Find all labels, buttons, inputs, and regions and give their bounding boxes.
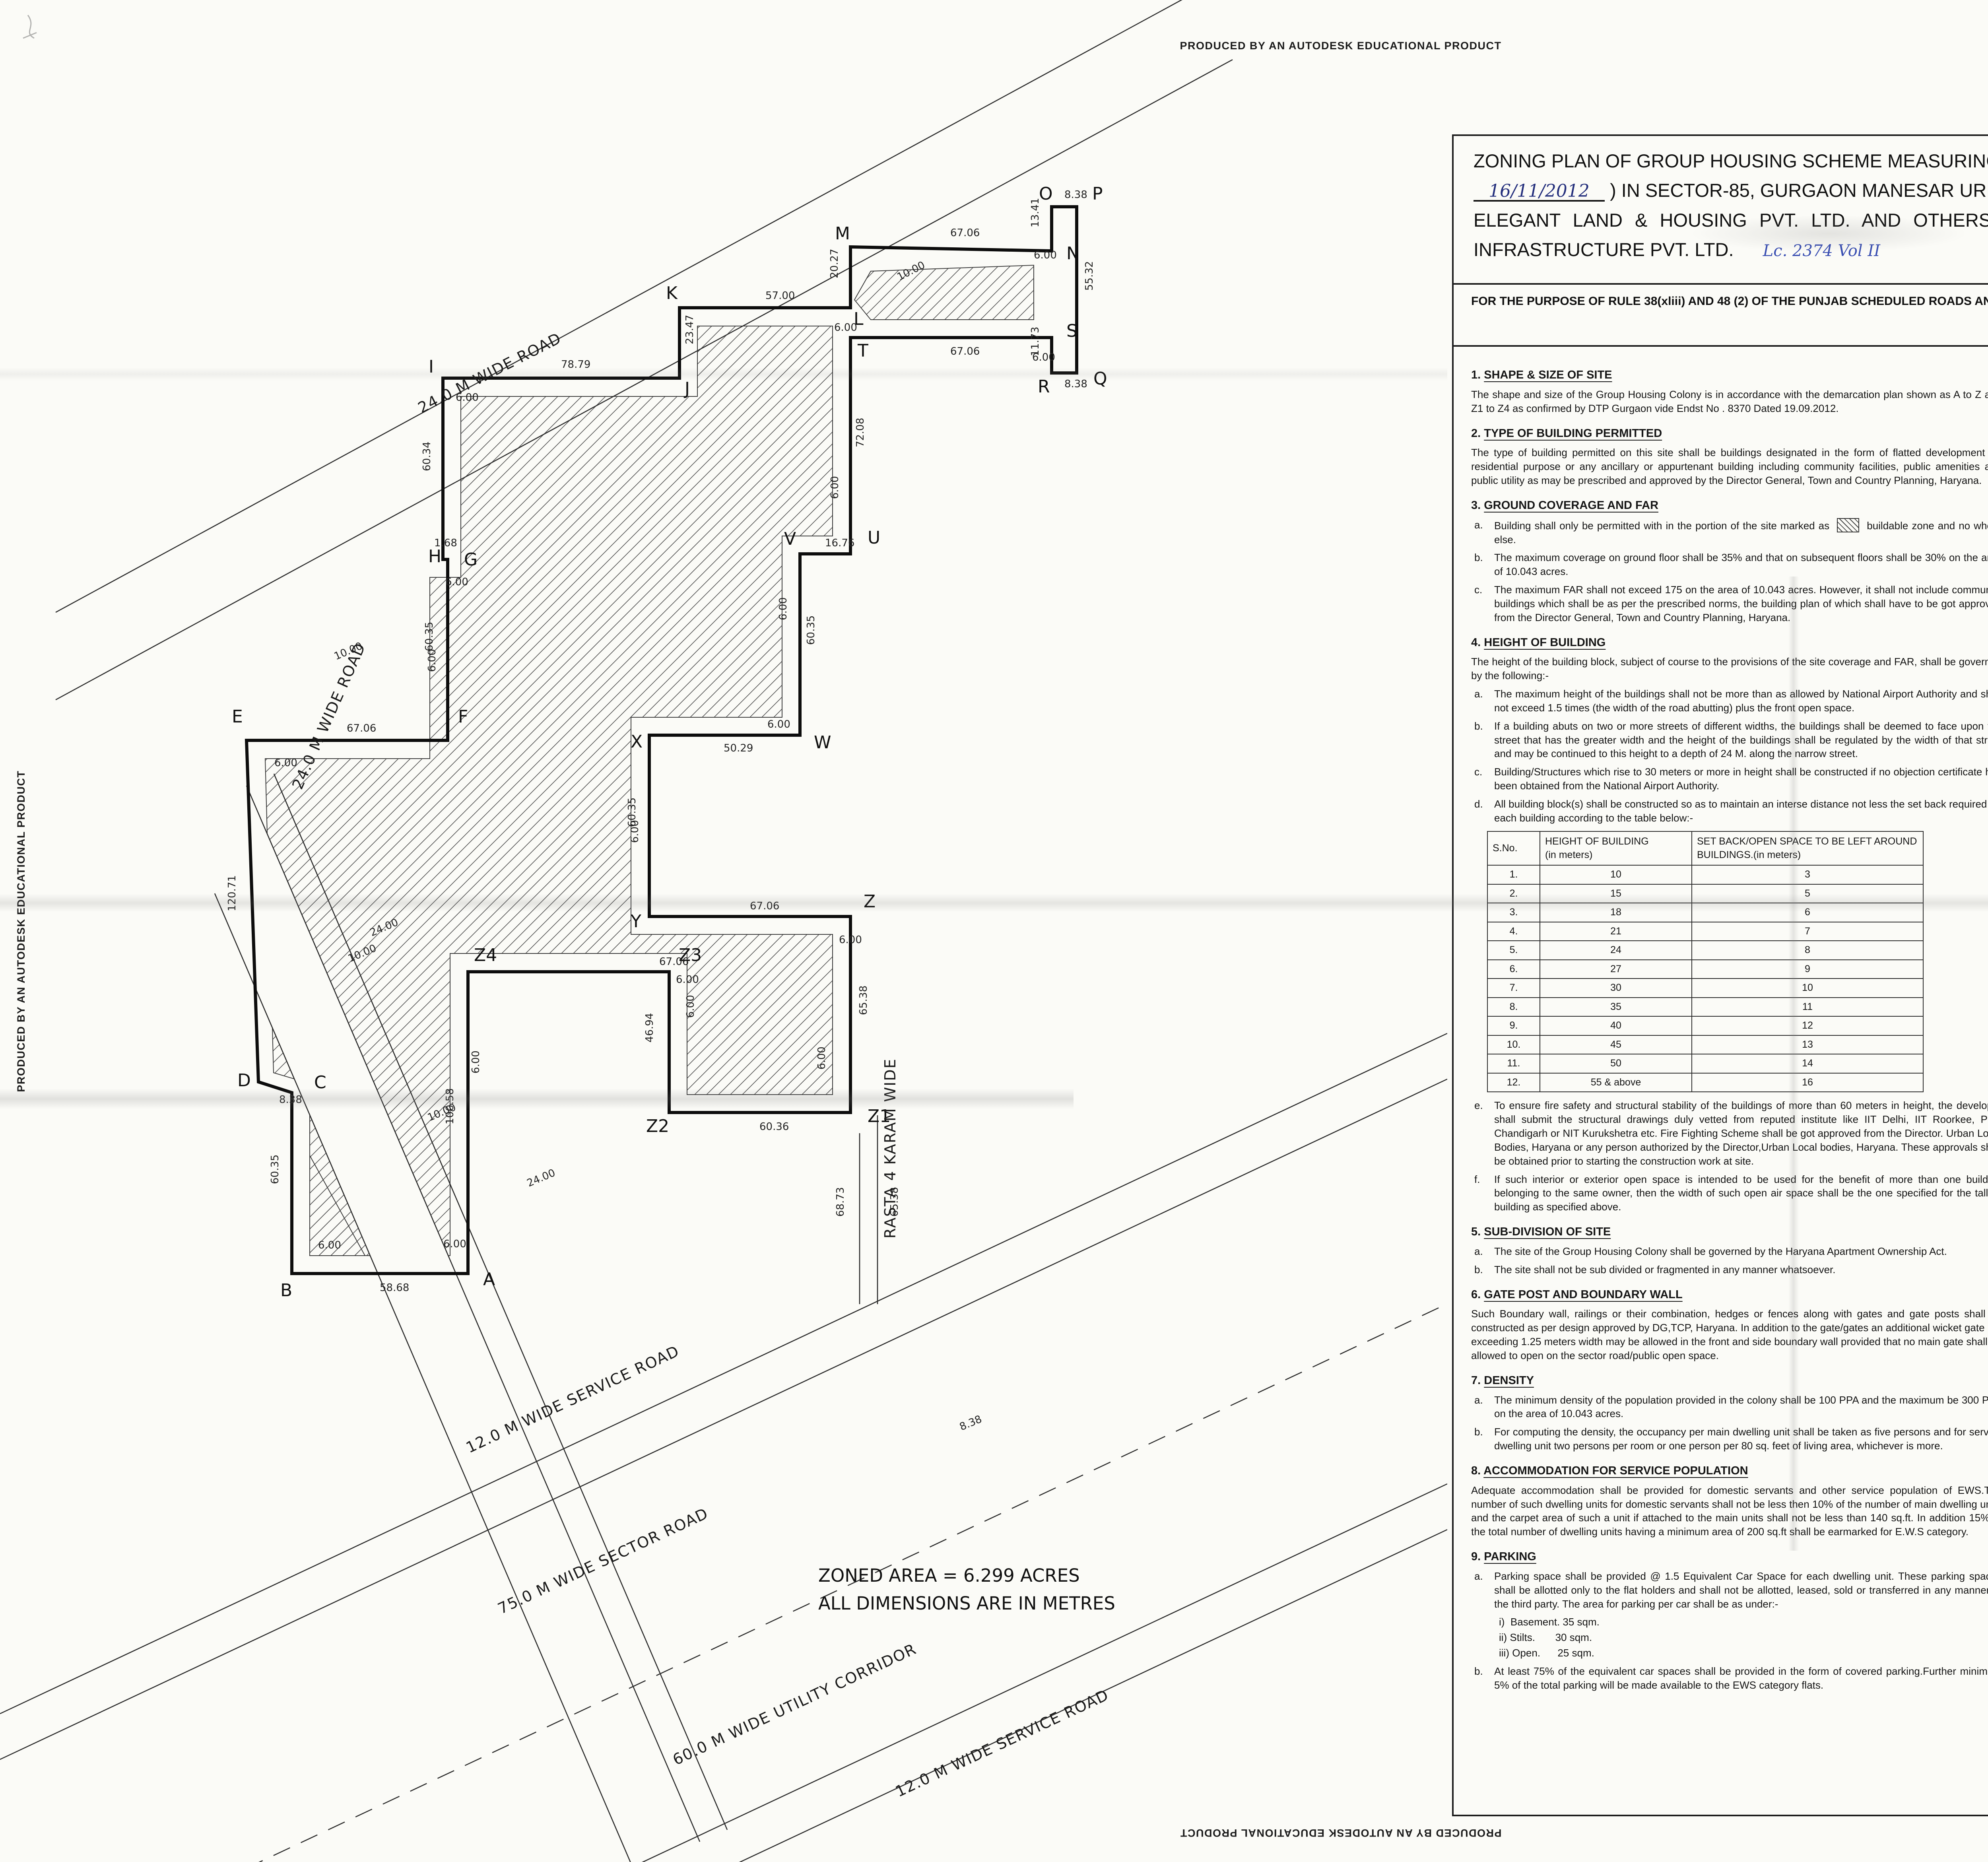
clause-text: The maximum height of the buildings shal… xyxy=(1494,688,1988,714)
section-heading: 5. SUB-DIVISION OF SITE xyxy=(1471,1224,1988,1240)
table-cell: 9 xyxy=(1692,960,1923,979)
road-centerline-dashed xyxy=(0,1304,1447,1862)
table-row: 8.3511 xyxy=(1487,998,1923,1017)
hatch-swatch xyxy=(1837,518,1859,532)
clause-label: c. xyxy=(1474,583,1482,597)
clause-label: a. xyxy=(1474,687,1483,701)
clause-text: If such interior or exterior open space … xyxy=(1494,1173,1988,1213)
section: 6. GATE POST AND BOUNDARY WALLSuch Bound… xyxy=(1471,1287,1988,1363)
table-cell: 27 xyxy=(1540,960,1692,979)
drawing-title: ZONING PLAN OF GROUP HOUSING SCHEME MEAS… xyxy=(1474,146,1988,264)
table-cell: 18 xyxy=(1540,903,1692,922)
clause-text: The site of the Group Housing Colony sha… xyxy=(1494,1245,1947,1257)
clause-label: b. xyxy=(1474,1263,1483,1277)
clause-text: To ensure fire safety and structural sta… xyxy=(1494,1099,1988,1167)
clause-label: b. xyxy=(1474,1425,1483,1439)
vertex-letter: S xyxy=(1066,321,1077,341)
table-cell: 1. xyxy=(1487,865,1540,884)
vertex-letter: I xyxy=(429,357,434,377)
vertex-letter: C xyxy=(314,1072,326,1093)
clause-item: b.For computing the density, the occupan… xyxy=(1471,1425,1988,1453)
clause-text: The maximum coverage on ground floor sha… xyxy=(1494,551,1988,577)
table-cell: 6 xyxy=(1692,903,1923,922)
dimension-label: 6.00 xyxy=(777,597,789,620)
table-cell: 55 & above xyxy=(1540,1073,1692,1092)
vertex-letter: M xyxy=(835,223,850,244)
vertex-letter: D xyxy=(237,1070,251,1091)
scan-pen-mark xyxy=(23,15,37,38)
table-cell: 12 xyxy=(1692,1016,1923,1035)
dimension-label: 6.00 xyxy=(629,820,641,843)
dimension-label: 13.41 xyxy=(1029,198,1041,227)
dimension-label: 60.36 xyxy=(759,1121,789,1133)
dimension-label: 78.79 xyxy=(561,359,590,371)
road-line xyxy=(0,1530,1447,1862)
setback-table: S.No.HEIGHT OF BUILDING (in meters)SET B… xyxy=(1487,831,1924,1092)
table-cell: 11. xyxy=(1487,1054,1540,1073)
dimension-label: 60.35 xyxy=(269,1155,281,1184)
road-line xyxy=(0,1079,1447,1759)
section: 4. HEIGHT OF BUILDINGThe height of the b… xyxy=(1471,635,1988,1214)
section-title: SUB-DIVISION OF SITE xyxy=(1484,1225,1611,1238)
dimension-label: 60.35 xyxy=(805,615,817,645)
zoned-area-note: ALL DIMENSIONS ARE IN METRES xyxy=(818,1593,1115,1614)
table-cell: 7 xyxy=(1692,922,1923,941)
table-cell: 10. xyxy=(1487,1035,1540,1054)
section: 3. GROUND COVERAGE AND FARa.Building sha… xyxy=(1471,498,1988,625)
table-cell: 50 xyxy=(1540,1054,1692,1073)
buildable-zone-hatch xyxy=(854,265,1034,320)
section: 5. SUB-DIVISION OF SITEa.The site of the… xyxy=(1471,1224,1988,1277)
clause-item: a.The site of the Group Housing Colony s… xyxy=(1471,1245,1988,1258)
dimension-label: 16.76 xyxy=(825,537,854,549)
clause-text: All building block(s) shall be construct… xyxy=(1494,798,1988,824)
clause-item: b.The site shall not be sub divided or f… xyxy=(1471,1263,1988,1277)
road-line xyxy=(0,1484,1447,1862)
clause-text: The site shall not be sub divided or fra… xyxy=(1494,1264,1836,1276)
dimension-label: 50.29 xyxy=(724,742,753,754)
clause-label: f. xyxy=(1474,1173,1480,1186)
road-label: RASTA 4 KARAM WIDE xyxy=(881,1058,899,1239)
table-row: 3.186 xyxy=(1487,903,1923,922)
table-row: 7.3010 xyxy=(1487,979,1923,998)
section: 1. SHAPE & SIZE OF SITEThe shape and siz… xyxy=(1471,367,1988,416)
table-cell: 11 xyxy=(1692,998,1923,1017)
clause-label: b. xyxy=(1474,551,1483,565)
dated-blank: 16/11/2012 xyxy=(1474,181,1605,202)
zoning-plan-sheet: PRODUCED BY AN AUTODESK EDUCATIONAL PROD… xyxy=(0,0,1988,1862)
vertex-letter: Q xyxy=(1093,369,1107,389)
site-plan-svg: ABCDEFGHIJKLMNOPQRSTUVWXYZZ1Z2Z3Z478.792… xyxy=(0,0,1447,1862)
table-header: S.No. xyxy=(1487,831,1540,865)
table-cell: 16 xyxy=(1692,1073,1923,1092)
section-heading: 3. GROUND COVERAGE AND FAR xyxy=(1471,498,1988,513)
title-text-1: ZONING PLAN OF GROUP HOUSING SCHEME MEAS… xyxy=(1474,150,1988,171)
vertex-letter: Z xyxy=(864,891,876,912)
zoned-area-note: ZONED AREA = 6.299 ACRES xyxy=(818,1565,1080,1586)
table-cell: 10 xyxy=(1692,979,1923,998)
dimension-label: 60.35 xyxy=(423,622,435,651)
title-divider xyxy=(1452,283,1988,285)
clause-item: c.Building/Structures which rise to 30 m… xyxy=(1471,765,1988,793)
clause-label: a. xyxy=(1474,518,1483,532)
clause-label: b. xyxy=(1474,719,1483,733)
table-cell: 45 xyxy=(1540,1035,1692,1054)
vertex-letter: G xyxy=(464,549,478,570)
parking-area-line: iii) Open. 25 sqm. xyxy=(1471,1646,1988,1660)
subtitle-divider xyxy=(1452,345,1988,347)
clause-text: Parking space shall be provided @ 1.5 Eq… xyxy=(1494,1570,1988,1610)
dimension-label: 60.34 xyxy=(421,442,433,471)
table-cell: 5. xyxy=(1487,941,1540,960)
title-text-6: INFRASTRUCTURE PVT. LTD. xyxy=(1474,239,1734,260)
table-row: 5.248 xyxy=(1487,941,1923,960)
dimension-label: 1.68 xyxy=(434,537,457,549)
section-heading: 4. HEIGHT OF BUILDING xyxy=(1471,635,1988,650)
section-number: 9. xyxy=(1471,1550,1484,1563)
dimension-label: 55.32 xyxy=(1083,261,1095,291)
table-row: 9.4012 xyxy=(1487,1016,1923,1035)
table-cell: 30 xyxy=(1540,979,1692,998)
section-number: 6. xyxy=(1471,1288,1484,1301)
section-heading: 9. PARKING xyxy=(1471,1549,1988,1565)
table-cell: 3 xyxy=(1692,865,1923,884)
section: 7. DENSITYa.The minimum density of the p… xyxy=(1471,1373,1988,1453)
dimension-label: 67.06 xyxy=(950,227,980,239)
dimension-label: 6.00 xyxy=(470,1050,482,1074)
dimension-label: 65.38 xyxy=(858,986,870,1015)
table-row: 12.55 & above16 xyxy=(1487,1073,1923,1092)
dated-handwritten: 16/11/2012 xyxy=(1489,181,1590,201)
table-cell: 10 xyxy=(1540,865,1692,884)
table-cell: 35 xyxy=(1540,998,1692,1017)
clause-label: e. xyxy=(1474,1099,1483,1113)
vertex-letter: A xyxy=(483,1269,495,1289)
vertex-letter: K xyxy=(666,283,678,303)
file-note-handwritten: Lc. 2374 Vol II xyxy=(1763,242,1880,260)
table-row: 10.4513 xyxy=(1487,1035,1923,1054)
vertex-letter: Z4 xyxy=(474,945,497,965)
purpose-subtitle: FOR THE PURPOSE OF RULE 38(xliii) AND 48… xyxy=(1471,293,1988,310)
dimension-label: 6.00 xyxy=(839,934,862,946)
clause-text: The maximum FAR shall not exceed 175 on … xyxy=(1494,584,1988,623)
section-heading: 7. DENSITY xyxy=(1471,1373,1988,1388)
section-number: 3. xyxy=(1471,499,1484,512)
parking-area-line: i) Basement. 35 sqm. xyxy=(1471,1615,1988,1629)
vertex-letter: U xyxy=(868,528,880,548)
table-cell: 13 xyxy=(1692,1035,1923,1054)
notes-column-1: 1. SHAPE & SIZE OF SITEThe shape and siz… xyxy=(1471,357,1988,1697)
section-title: GROUND COVERAGE AND FAR xyxy=(1484,499,1658,512)
dimension-label: 6.00 xyxy=(1032,351,1055,363)
clause-item: a.The minimum density of the population … xyxy=(1471,1393,1988,1421)
dimension-label: 8.38 xyxy=(1064,189,1087,201)
section-number: 2. xyxy=(1471,427,1484,440)
dimension-label: 6.00 xyxy=(443,1238,466,1250)
clause-item: a.Building shall only be permitted with … xyxy=(1471,518,1988,547)
clause-paragraph: The height of the building block, subjec… xyxy=(1471,655,1988,683)
road-label: 12.0 M WIDE SERVICE ROAD xyxy=(893,1686,1111,1800)
dimension-label: 68.73 xyxy=(835,1187,846,1217)
table-row: 2.155 xyxy=(1487,884,1923,903)
dimension-label: 8.38 xyxy=(1064,378,1087,390)
section-title: SHAPE & SIZE OF SITE xyxy=(1484,369,1612,381)
dimension-label: 6.00 xyxy=(274,757,297,769)
dimension-label: 23.47 xyxy=(684,315,696,344)
section-title: ACCOMMODATION FOR SERVICE POPULATION xyxy=(1483,1464,1748,1477)
section-heading: 1. SHAPE & SIZE OF SITE xyxy=(1471,367,1988,383)
table-cell: 5 xyxy=(1692,884,1923,903)
dimension-label: 6.00 xyxy=(816,1047,828,1070)
table-cell: 12. xyxy=(1487,1073,1540,1092)
dimension-label: 6.00 xyxy=(829,476,841,499)
table-row: 4.217 xyxy=(1487,922,1923,941)
section-heading: 6. GATE POST AND BOUNDARY WALL xyxy=(1471,1287,1988,1303)
clause-label: d. xyxy=(1474,797,1483,811)
dimension-label: 6.00 xyxy=(426,649,438,672)
dimension-label: 24.00 xyxy=(525,1167,557,1190)
parking-area-line: ii) Stilts. 30 sqm. xyxy=(1471,1631,1988,1645)
clause-paragraph: Adequate accommodation shall be provided… xyxy=(1471,1483,1988,1539)
vertex-letter: H xyxy=(428,546,441,567)
section-number: 1. xyxy=(1471,369,1484,381)
vertex-letter: V xyxy=(784,529,796,549)
dimension-label: 67.06 xyxy=(950,346,980,357)
table-cell: 2. xyxy=(1487,884,1540,903)
dimension-label: 67.06 xyxy=(750,900,779,912)
table-row: 6.279 xyxy=(1487,960,1923,979)
table-cell: 8 xyxy=(1692,941,1923,960)
table-cell: 4. xyxy=(1487,922,1540,941)
clause-text: If a building abuts on two or more stree… xyxy=(1494,720,1988,760)
clause-item: c.The maximum FAR shall not exceed 175 o… xyxy=(1471,583,1988,624)
clause-item: f.If such interior or exterior open spac… xyxy=(1471,1173,1988,1214)
section-title: PARKING xyxy=(1484,1550,1536,1563)
clause-item: e.To ensure fire safety and structural s… xyxy=(1471,1099,1988,1168)
table-cell: 8. xyxy=(1487,998,1540,1017)
clause-paragraph: The shape and size of the Group Housing … xyxy=(1471,388,1988,416)
table-cell: 21 xyxy=(1540,922,1692,941)
vertex-letter: Z2 xyxy=(646,1116,669,1136)
section-title: DENSITY xyxy=(1484,1374,1534,1387)
clause-text: For computing the density, the occupancy… xyxy=(1494,1426,1988,1452)
section-title: GATE POST AND BOUNDARY WALL xyxy=(1484,1288,1682,1301)
clause-label: b. xyxy=(1474,1664,1483,1678)
clause-item: b.The maximum coverage on ground floor s… xyxy=(1471,551,1988,579)
clause-label: c. xyxy=(1474,765,1482,779)
table-cell: 40 xyxy=(1540,1016,1692,1035)
section: 9. PARKINGa.Parking space shall be provi… xyxy=(1471,1549,1988,1692)
vertex-letter: X xyxy=(631,732,643,752)
dimension-label: 57.00 xyxy=(765,290,795,302)
clause-text: At least 75% of the equivalent car space… xyxy=(1494,1665,1988,1691)
clause-item: b.At least 75% of the equivalent car spa… xyxy=(1471,1664,1988,1692)
dimension-label: 6.00 xyxy=(676,974,699,986)
section-title: HEIGHT OF BUILDING xyxy=(1484,636,1606,649)
dimension-label: 20.27 xyxy=(829,249,841,278)
dimension-label: 6.00 xyxy=(445,576,468,588)
clause-item: a.Parking space shall be provided @ 1.5 … xyxy=(1471,1569,1988,1611)
section-title: TYPE OF BUILDING PERMITTED xyxy=(1484,427,1662,440)
section-heading: 8. ACCOMMODATION FOR SERVICE POPULATION xyxy=(1471,1463,1988,1479)
vertex-letter: P xyxy=(1092,184,1103,204)
table-header-row: S.No.HEIGHT OF BUILDING (in meters)SET B… xyxy=(1487,831,1923,865)
vertex-letter: F xyxy=(458,707,468,727)
dimension-label: 72.08 xyxy=(854,418,866,447)
clause-paragraph: Such Boundary wall, railings or their co… xyxy=(1471,1307,1988,1362)
table-cell: 3. xyxy=(1487,903,1540,922)
table-cell: 15 xyxy=(1540,884,1692,903)
table-cell: 7. xyxy=(1487,979,1540,998)
dimension-label: 67.06 xyxy=(659,956,689,968)
dimension-label: 6.00 xyxy=(834,322,857,334)
vertex-letter: Y xyxy=(630,911,641,932)
road-line xyxy=(0,1033,1447,1714)
table-cell: 6. xyxy=(1487,960,1540,979)
section-number: 7. xyxy=(1471,1374,1484,1387)
clause-text: The minimum density of the population pr… xyxy=(1494,1394,1988,1420)
dimension-label: 8.38 xyxy=(958,1413,984,1433)
title-text-5: ELEGANT LAND & HOUSING PVT. LTD. AND OTH… xyxy=(1474,210,1988,231)
table-cell: 24 xyxy=(1540,941,1692,960)
clause-item: b.If a building abuts on two or more str… xyxy=(1471,719,1988,761)
dimension-label: 67.06 xyxy=(347,722,376,734)
clause-label: a. xyxy=(1474,1245,1483,1258)
clause-text: Building shall only be permitted with in… xyxy=(1494,520,1988,546)
dimension-label: 8.38 xyxy=(279,1094,302,1106)
clause-label: a. xyxy=(1474,1569,1483,1583)
vertex-letter: E xyxy=(232,707,243,727)
clause-label: a. xyxy=(1474,1393,1483,1407)
clause-text: Building/Structures which rise to 30 met… xyxy=(1494,766,1988,792)
table-header: HEIGHT OF BUILDING (in meters) xyxy=(1540,831,1692,865)
table-cell: 9. xyxy=(1487,1016,1540,1035)
section-number: 8. xyxy=(1471,1464,1483,1477)
section-heading: 2. TYPE OF BUILDING PERMITTED xyxy=(1471,426,1988,441)
section: 8. ACCOMMODATION FOR SERVICE POPULATIONA… xyxy=(1471,1463,1988,1539)
dimension-label: 6.00 xyxy=(318,1239,341,1251)
section: 2. TYPE OF BUILDING PERMITTEDThe type of… xyxy=(1471,426,1988,487)
section-number: 5. xyxy=(1471,1225,1484,1238)
table-row: 11.5014 xyxy=(1487,1054,1923,1073)
clause-item: a.The maximum height of the buildings sh… xyxy=(1471,687,1988,715)
vertex-letter: R xyxy=(1038,377,1050,397)
table-row: 1.103 xyxy=(1487,865,1923,884)
table-header: SET BACK/OPEN SPACE TO BE LEFT AROUND BU… xyxy=(1692,831,1923,865)
clause-paragraph: The type of building permitted on this s… xyxy=(1471,446,1988,487)
vertex-letter: W xyxy=(814,732,831,753)
dimension-label: 58.68 xyxy=(380,1282,409,1294)
vertex-letter: J xyxy=(683,379,690,399)
clause-item: d.All building block(s) shall be constru… xyxy=(1471,797,1988,825)
dimension-label: 6.00 xyxy=(685,995,697,1018)
vertex-letter: N xyxy=(1066,243,1079,264)
vertex-letter: B xyxy=(280,1280,292,1301)
table-cell: 14 xyxy=(1692,1054,1923,1073)
dimension-label: 6.00 xyxy=(1034,249,1057,261)
title-text-4: ) IN SECTOR-85, GURGAON MANESAR URBAN CO… xyxy=(1610,180,1988,201)
dimension-label: 6.00 xyxy=(767,718,790,730)
vertex-letter: T xyxy=(857,341,868,361)
dimension-label: 46.94 xyxy=(644,1013,656,1043)
section-number: 4. xyxy=(1471,636,1484,649)
dimension-label: 120.71 xyxy=(226,875,238,911)
